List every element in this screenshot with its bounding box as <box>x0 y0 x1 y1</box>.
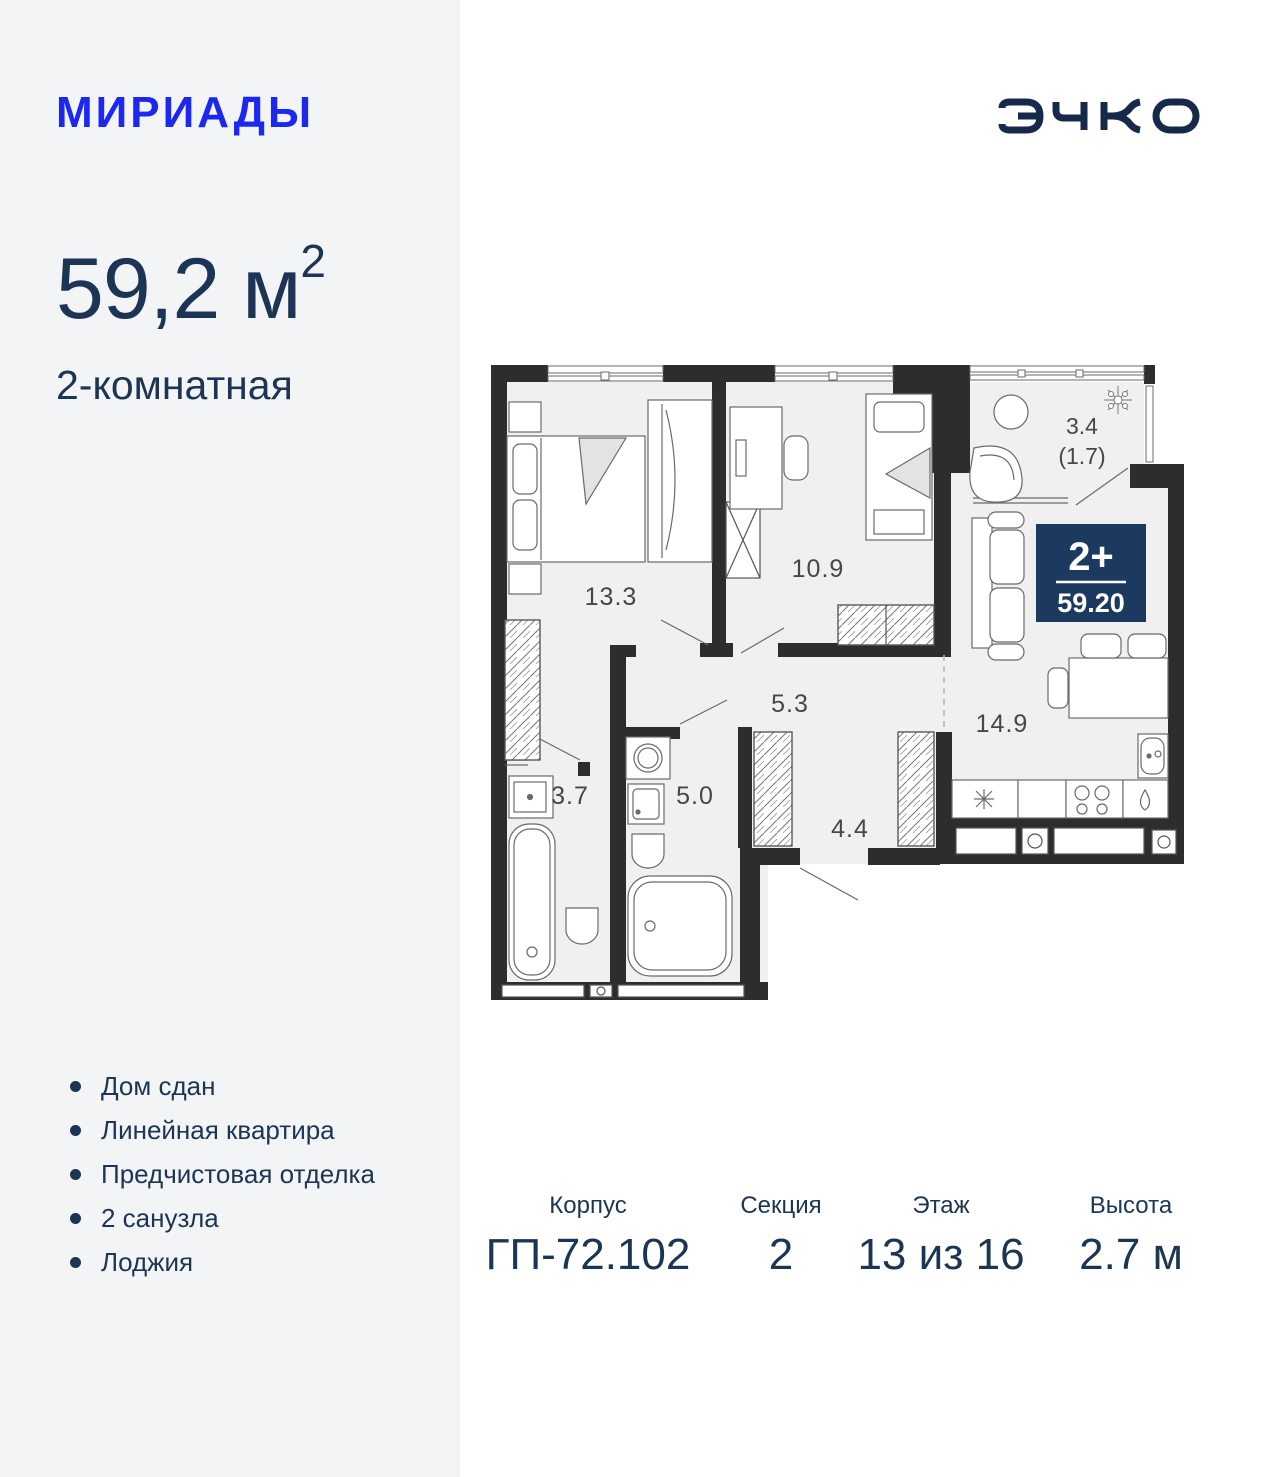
feature-list: Дом сдан Линейная квартира Предчистовая … <box>70 1064 375 1284</box>
label-corridor: 4.4 <box>831 815 869 843</box>
label-bedroom: 13.3 <box>585 583 638 611</box>
label-balcony: 3.4 <box>1066 413 1098 439</box>
area-badge: 2+ 59.20 <box>1036 524 1146 622</box>
label-balcony-reduced: (1.7) <box>1058 443 1105 469</box>
bullet-icon <box>70 1081 81 1092</box>
feature-item: Линейная квартира <box>70 1108 375 1152</box>
label-bathroom: 3.7 <box>551 782 589 810</box>
info-floor: Этаж 13 из 16 <box>846 1192 1036 1280</box>
floor-plan-svg: 13.3 10.9 5.3 3.7 5.0 4.4 14.9 3.4 (1.7)… <box>478 352 1196 1002</box>
label-hall: 5.3 <box>771 690 809 718</box>
apartment-area: 59,2 м2 <box>56 240 325 339</box>
badge-area: 59.20 <box>1057 588 1125 618</box>
bullet-icon <box>70 1125 81 1136</box>
floor-plan: 13.3 10.9 5.3 3.7 5.0 4.4 14.9 3.4 (1.7)… <box>478 352 1196 1002</box>
info-section: Секция 2 <box>716 1192 846 1280</box>
feature-item: Предчистовая отделка <box>70 1152 375 1196</box>
bullet-icon <box>70 1169 81 1180</box>
apartment-info-row: Корпус ГП-72.102 Секция 2 Этаж 13 из 16 … <box>460 1192 1230 1280</box>
bullet-icon <box>70 1213 81 1224</box>
feature-item: 2 санузла <box>70 1196 375 1240</box>
badge-rooms: 2+ <box>1068 535 1114 579</box>
bullet-icon <box>70 1257 81 1268</box>
apartment-type: 2-комнатная <box>56 362 293 409</box>
info-building: Корпус ГП-72.102 <box>460 1192 716 1280</box>
label-bath: 5.0 <box>676 782 714 810</box>
feature-item: Лоджия <box>70 1240 375 1284</box>
info-height: Высота 2.7 м <box>1036 1192 1226 1280</box>
label-kitchen-living: 14.9 <box>976 710 1029 738</box>
label-room: 10.9 <box>792 555 845 583</box>
brand-logo[interactable]: МИРИАДЫ <box>56 88 314 138</box>
developer-logo-enko[interactable] <box>996 98 1200 134</box>
feature-item: Дом сдан <box>70 1064 375 1108</box>
